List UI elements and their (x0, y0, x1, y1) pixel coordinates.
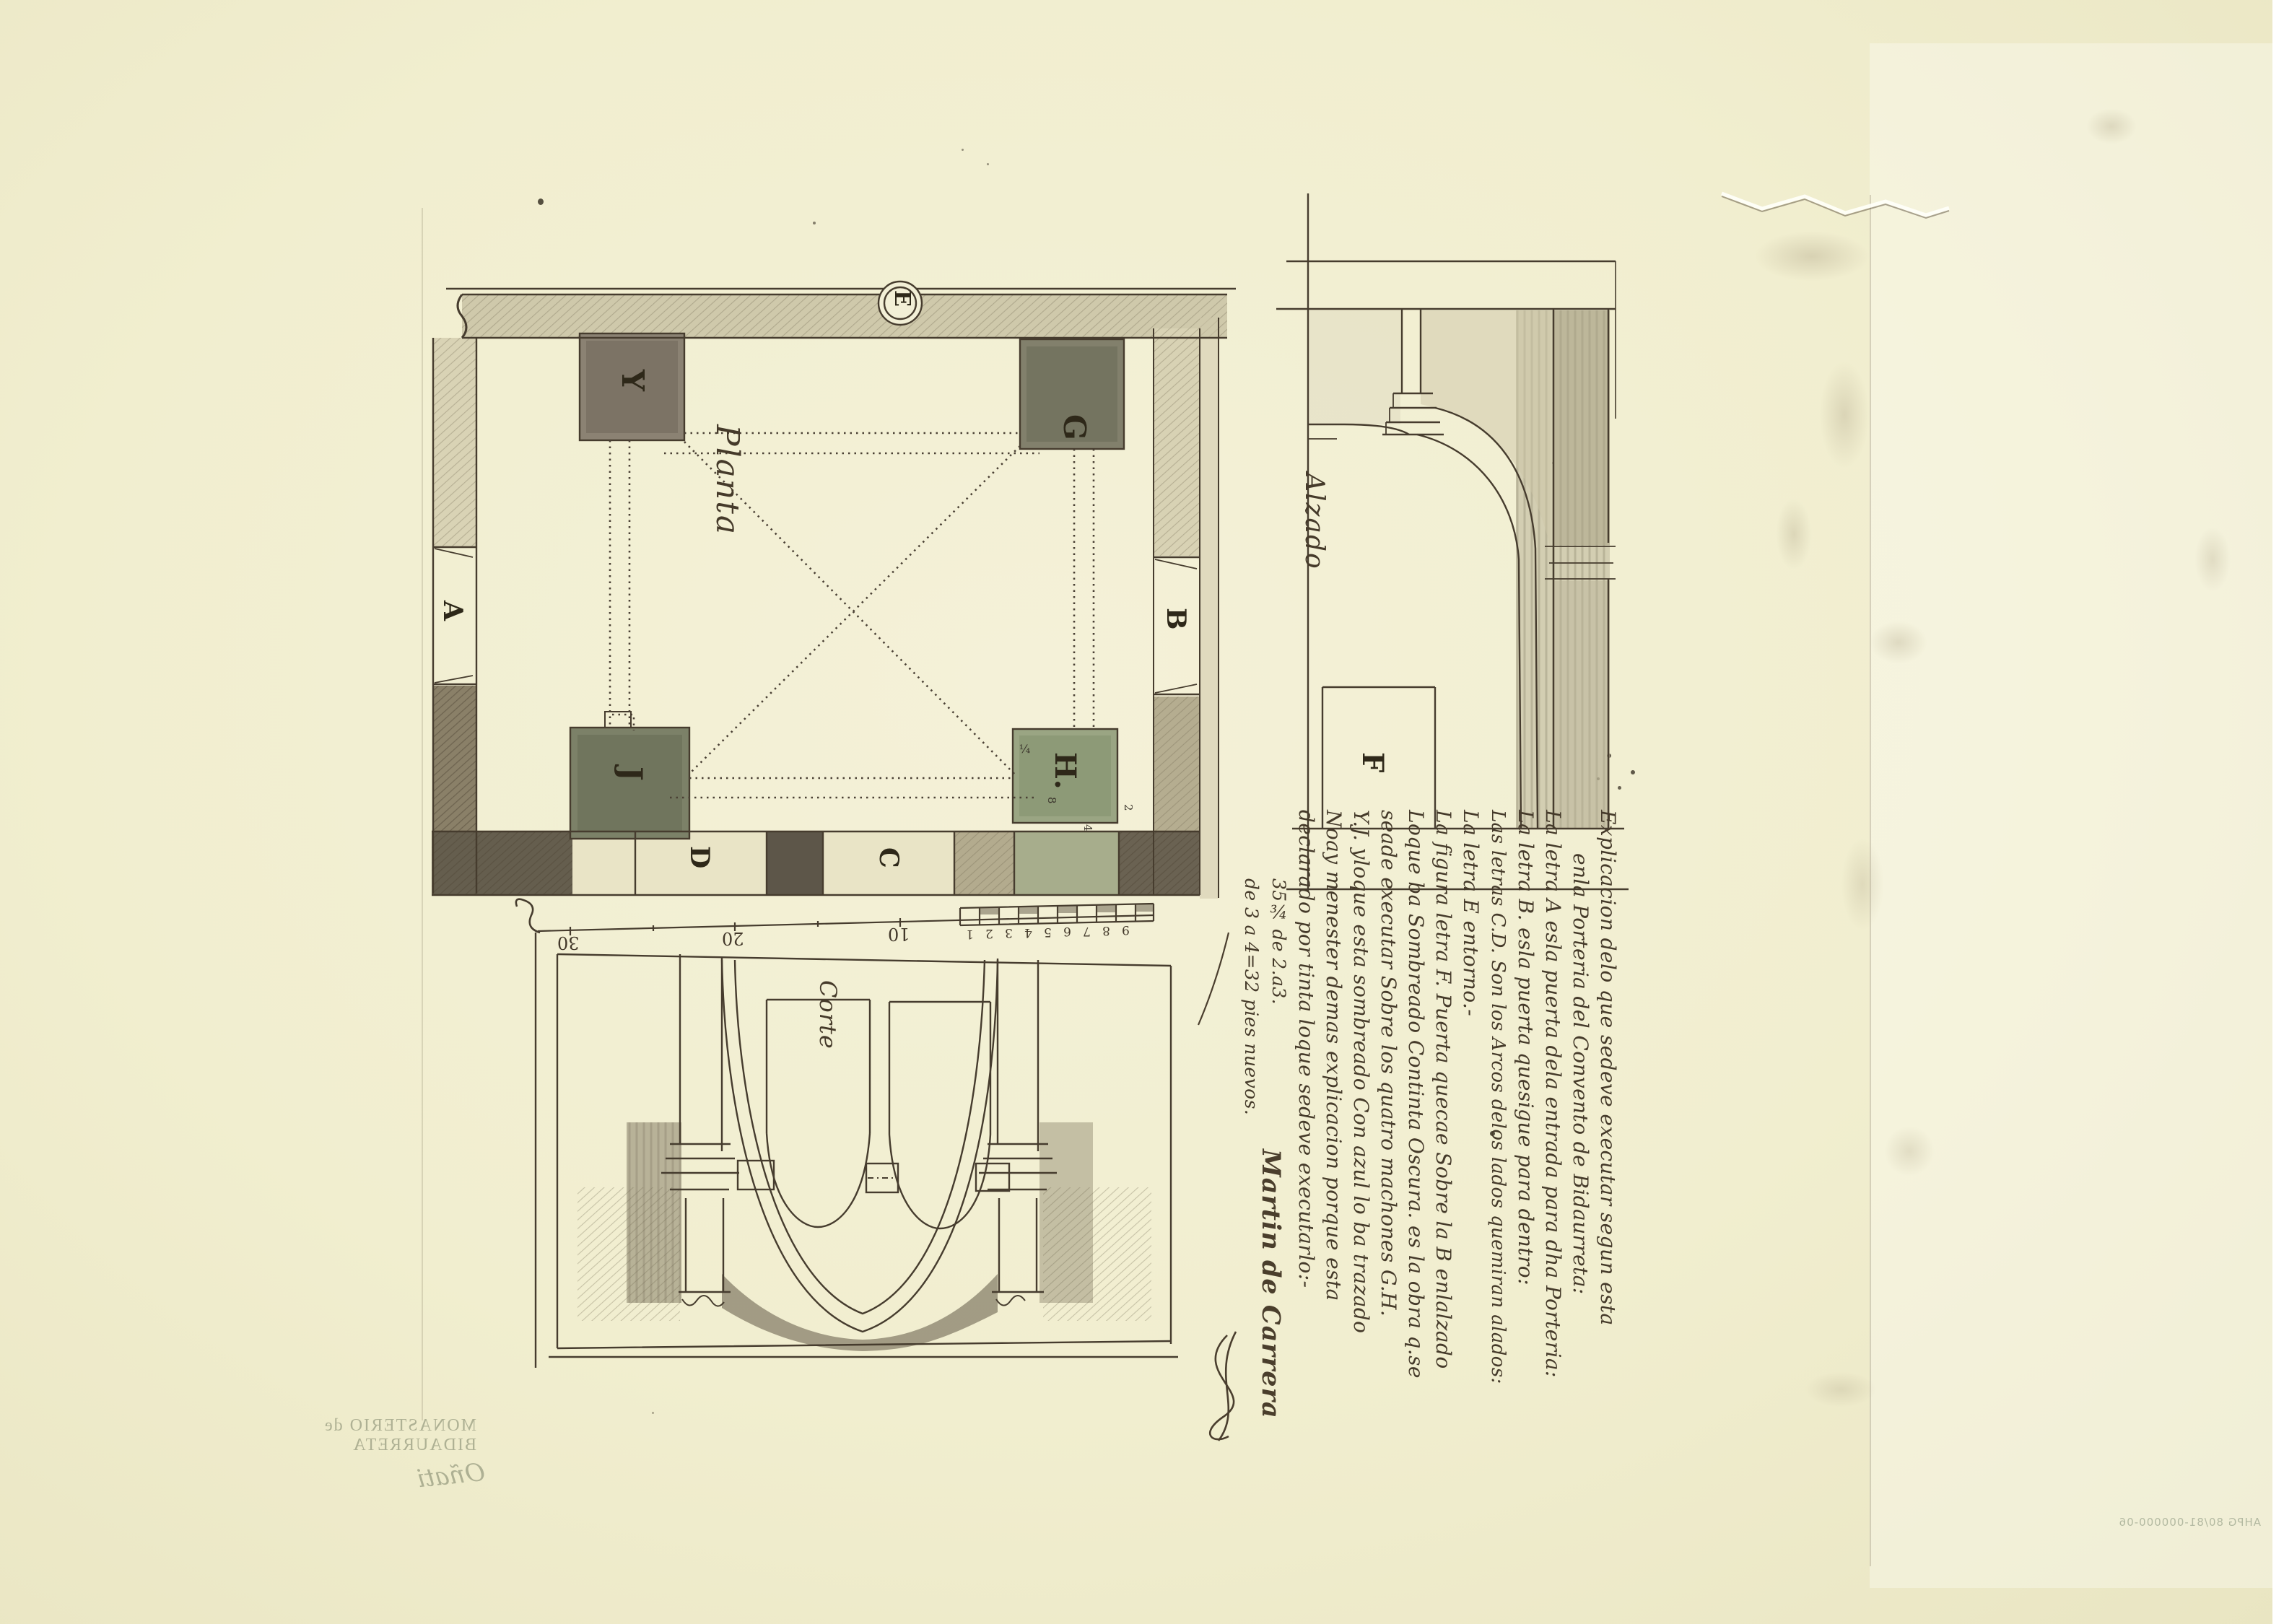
drawing-linework (0, 0, 2284, 1624)
scale-subdivision-9: 9 (1122, 922, 1130, 937)
verso-bleedthrough-line1: MONASTERIO de BIDAURRETA (217, 1416, 476, 1455)
alzado-washes (1308, 309, 1610, 829)
legend-line: La letra B. esla puerta quesigue para de… (1512, 810, 1539, 1363)
scale-subdivision-7: 7 (1083, 924, 1091, 938)
scale-subdivision-1: 1 (966, 927, 974, 941)
signature: Martin de Carrera (1256, 1149, 1286, 1419)
pier-mark-8: 8 (1045, 797, 1058, 804)
alzado-letter-f: F (1356, 752, 1390, 772)
legend-line: La letra A esla puerta dela entrada para… (1539, 810, 1566, 1363)
plan-letter-a: A (437, 601, 468, 621)
legend-line: Las letras C.D. Son los Arcos delos lado… (1484, 810, 1512, 1363)
scale-subdivision-2: 2 (985, 926, 993, 940)
plan-title: Planta (709, 424, 746, 536)
scale-subdivision-8: 8 (1102, 923, 1110, 938)
pier-mark-quarter: ¼ (1018, 742, 1032, 756)
plan-letter-j: J (614, 767, 649, 781)
legend-line: seade executar Sobre los quatro machones… (1374, 810, 1402, 1363)
plan-letter-e: E (889, 290, 915, 307)
scale-number-10: 10 (888, 924, 910, 944)
corte-title: Corte (814, 980, 842, 1049)
scale-subdivision-5: 5 (1044, 925, 1052, 939)
scale-bar (516, 899, 1154, 935)
plan-washes (432, 294, 1227, 899)
legend-line: enla Porteria del Convento de Bidaurreta… (1566, 810, 1594, 1363)
plan-letter-d: D (684, 846, 715, 868)
pier-mark-2: 2 (1122, 804, 1135, 811)
scale-subdivision-3: 3 (1005, 925, 1013, 940)
alzado-title: Alzado (1299, 473, 1329, 570)
legend-line: Loque ba Sombreado Continta Oscura. es l… (1402, 810, 1429, 1363)
plan-letter-b: B (1161, 608, 1191, 629)
plan-letter-g: G (1057, 414, 1092, 440)
legend-line: La figura letra F. Puerta quecae Sobre l… (1429, 810, 1457, 1363)
legend-line: declarado por tinta loque sedeve executa… (1292, 810, 1320, 1363)
plan-letter-h: H. (1048, 752, 1082, 790)
legend-line: Noay menester demas explicacion porque e… (1320, 810, 1347, 1363)
legend-line: Y.J. yloque esta sombreado Con azul lo b… (1347, 810, 1374, 1363)
plan-letter-y: Y (615, 370, 650, 391)
scale-number-30: 30 (557, 933, 580, 953)
plan-letter-c: C (873, 847, 904, 868)
catalog-stamp: AHPG 80/81-000000-06 (2088, 1516, 2261, 1529)
legend-line: La letra E entorno.- (1457, 810, 1484, 1363)
scale-subdivision-6: 6 (1063, 924, 1071, 938)
torn-edge (1722, 193, 1949, 218)
scale-number-20: 20 (722, 928, 744, 948)
scanned-drawing-sheet: Y G J H. A B D C E ¼ 8 2 4 Planta Alzado… (0, 0, 2284, 1624)
legend-line: Explicacion delo que sedeve executar seg… (1594, 810, 1621, 1363)
pier-mark-4: 4 (1081, 824, 1094, 831)
scale-subdivision-4: 4 (1024, 925, 1032, 940)
corte-washes (577, 1122, 1151, 1351)
